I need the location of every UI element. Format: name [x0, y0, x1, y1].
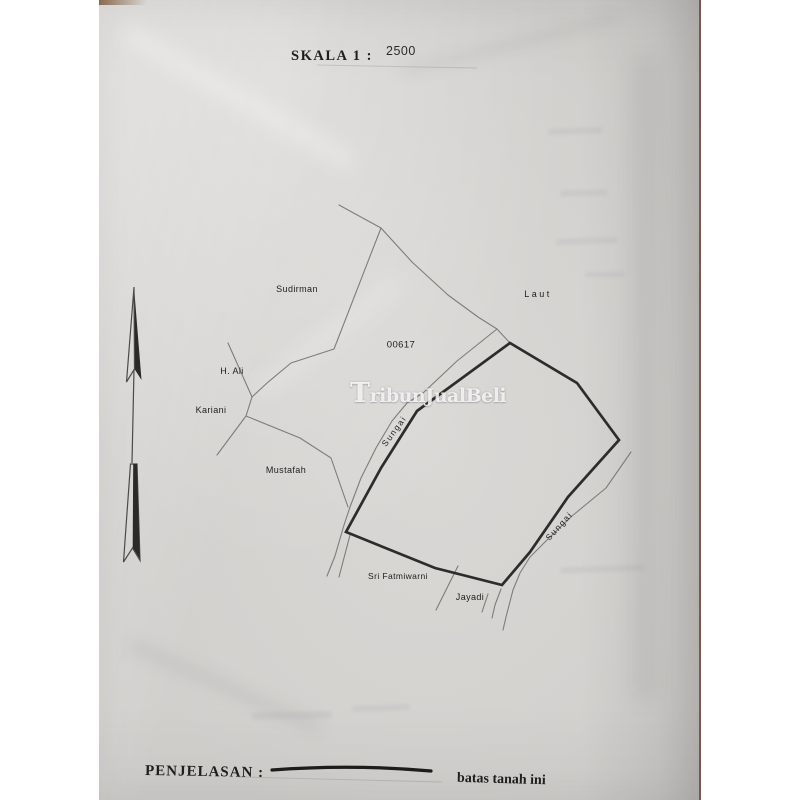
- legend-value: batas tanah ini: [457, 771, 546, 789]
- legend-label: PENJELASAN :: [145, 763, 264, 782]
- watermark: TribunJualBeli: [350, 380, 506, 410]
- owner-label-sri-fatmiwarni: Sri Fatmiwarni: [368, 571, 428, 581]
- watermark-initial: T: [350, 378, 370, 409]
- paper-edge-sliver: [99, 0, 147, 5]
- photographed-land-sketch: SKALA 1 : 2500 Sudirman Laut 00617 H. Al…: [0, 0, 800, 800]
- owner-label-kariani: Kariani: [196, 405, 227, 415]
- sea-label-laut: Laut: [524, 289, 552, 299]
- watermark-rest: ribunJualBeli: [370, 385, 507, 407]
- paper-crease: [126, 638, 323, 734]
- parcel-number: 00617: [387, 340, 415, 351]
- owner-label-jayadi: Jayadi: [456, 592, 484, 602]
- owner-label-sudirman: Sudirman: [276, 284, 318, 294]
- owner-label-mustafah: Mustafah: [266, 465, 306, 475]
- scale-value: 2500: [386, 44, 416, 58]
- paper-crease: [634, 60, 656, 700]
- owner-label-h-ali: H. Ali: [220, 366, 243, 376]
- paper-crease: [401, 14, 617, 77]
- scale-label: SKALA 1 :: [291, 48, 373, 65]
